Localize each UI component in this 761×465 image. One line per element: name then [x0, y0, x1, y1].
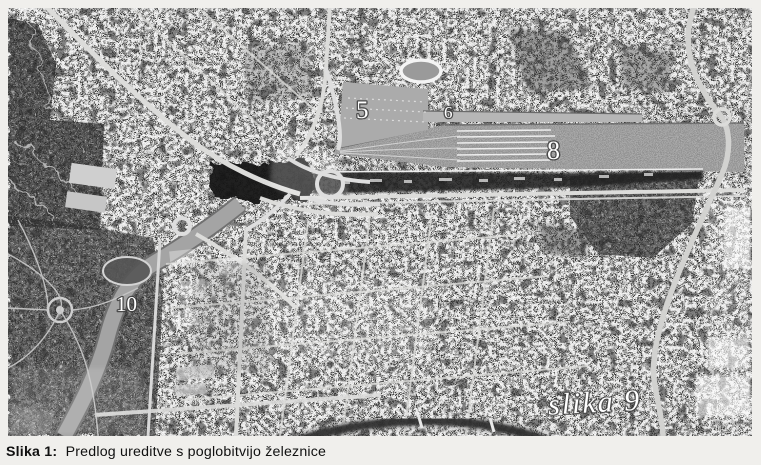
svg-text:6: 6: [444, 103, 453, 122]
svg-text:slika 9: slika 9: [547, 384, 642, 422]
svg-text:10: 10: [116, 292, 137, 316]
svg-text:8: 8: [547, 136, 560, 165]
svg-text:5: 5: [356, 97, 369, 124]
